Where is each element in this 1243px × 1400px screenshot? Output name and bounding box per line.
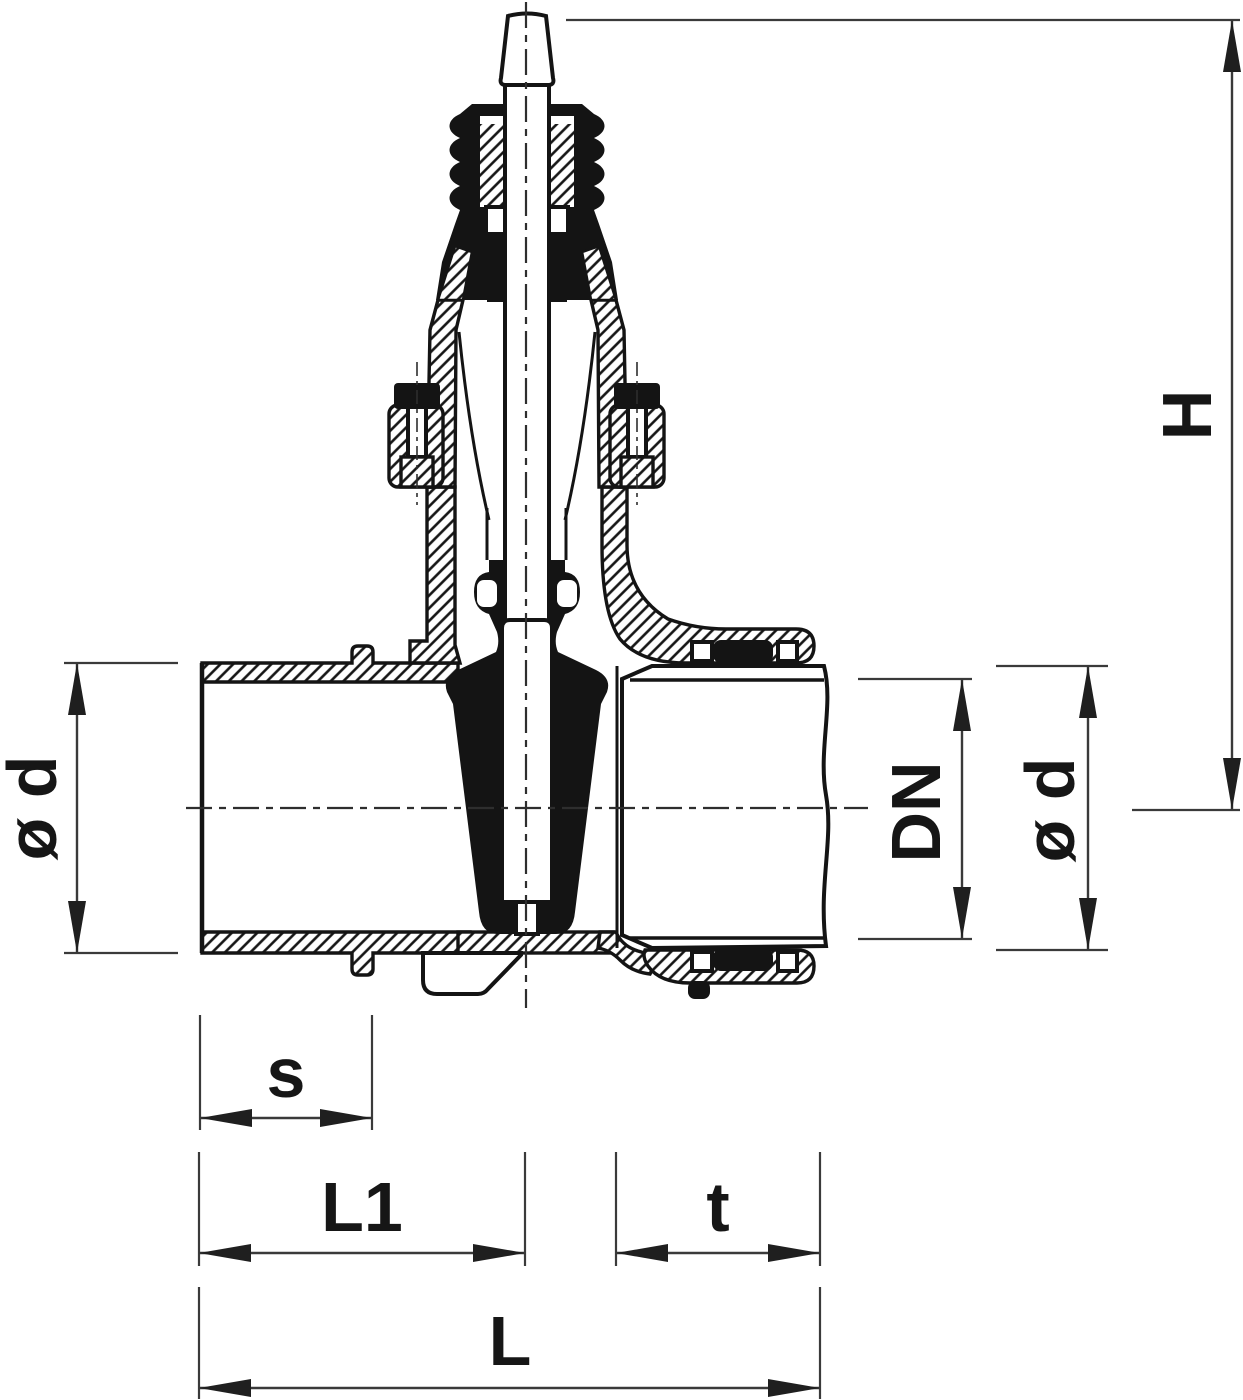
drawing-canvas: H ø d DN ø d s L1 <box>0 0 1243 1400</box>
wedge-pocket-right <box>557 580 577 607</box>
collar-seal-bottom <box>713 949 773 971</box>
dim-label-l: L <box>489 1302 532 1380</box>
dim-label-l1: L1 <box>321 1168 403 1246</box>
dim-label-od-right: ø d <box>1011 758 1089 863</box>
dim-label-s: s <box>267 1034 306 1112</box>
packing-left <box>480 124 504 207</box>
wedge-pocket-left <box>477 580 497 607</box>
collar-bolt-window-top-right <box>778 642 797 661</box>
dim-label-t: t <box>706 1168 729 1246</box>
collar-bolt-window-bottom-right <box>778 952 797 971</box>
dim-label-h: H <box>1148 390 1226 441</box>
packing-right <box>550 124 574 207</box>
bottom-lug-nub <box>688 981 710 999</box>
dim-label-od-left: ø d <box>0 756 71 861</box>
collar-bolt-window-bottom-left <box>692 952 712 971</box>
valve-technical-drawing: H ø d DN ø d s L1 <box>0 0 1243 1400</box>
collar-bolt-window-top-left <box>692 642 712 661</box>
collar-seal-top <box>713 640 773 663</box>
dim-label-dn: DN <box>877 761 955 862</box>
